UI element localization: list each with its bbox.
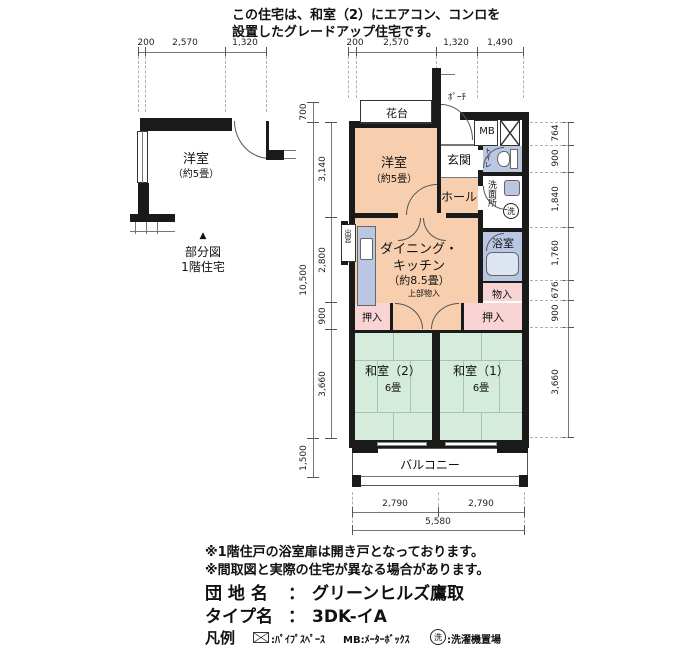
extension-line bbox=[530, 122, 568, 123]
oshiire-left-label: 押入 bbox=[362, 309, 382, 324]
extension-line bbox=[530, 327, 568, 328]
dim-label: 200 bbox=[346, 38, 363, 48]
dim-label: 1,760 bbox=[551, 240, 561, 266]
dim-tick bbox=[325, 122, 337, 123]
washitsu2-size: 6畳 bbox=[385, 379, 401, 394]
partial-marker: ▲ bbox=[200, 231, 207, 241]
dim-label: 764 bbox=[551, 124, 561, 141]
wall-washitsu-divider bbox=[432, 333, 440, 440]
type-name-separator: ： bbox=[288, 602, 305, 627]
dim-tick bbox=[352, 525, 353, 535]
legend-ps-text: :ﾊﾟｲﾌﾟｽﾍﾟｰｽ bbox=[271, 631, 325, 646]
dim-tick bbox=[352, 507, 353, 517]
toilet-tank bbox=[510, 149, 518, 169]
mb-label: MB bbox=[479, 126, 495, 137]
extension-line bbox=[530, 280, 568, 281]
balcony-block bbox=[519, 475, 528, 487]
legend-label: 凡例 bbox=[205, 627, 235, 648]
porch-label: ﾎﾟｰﾁ bbox=[448, 90, 466, 103]
dim-label: 900 bbox=[318, 307, 328, 324]
genkan-label: 玄関 bbox=[447, 151, 471, 168]
oshiire-right-label: 押入 bbox=[482, 309, 504, 325]
partial-left-wall bbox=[138, 183, 149, 216]
bay-window-cap bbox=[341, 221, 348, 225]
wall-top-b bbox=[460, 112, 529, 120]
balcony-label: バルコニー bbox=[400, 456, 460, 473]
dim-label: 900 bbox=[551, 149, 561, 166]
genkan-hall-line bbox=[441, 177, 478, 178]
pipe-space-legend-icon bbox=[253, 632, 269, 643]
laundry-legend-icon: 洗 bbox=[430, 629, 446, 645]
type-name-label: タイプ名 bbox=[205, 602, 273, 627]
wall-left bbox=[349, 121, 355, 448]
wall-stub-above-porch bbox=[432, 68, 441, 122]
estate-name-label: 団 地 名 bbox=[205, 579, 268, 604]
extension-line bbox=[530, 145, 568, 146]
door-gap bbox=[478, 186, 483, 210]
dim-label: 2,800 bbox=[318, 247, 328, 273]
kitchen-sink bbox=[360, 238, 373, 260]
mononyu-label: 物入 bbox=[492, 286, 512, 301]
balcony-block bbox=[352, 475, 361, 487]
dim-label: 3,660 bbox=[318, 371, 328, 397]
wall-oshiire-left-side bbox=[390, 303, 393, 330]
extension-line bbox=[530, 227, 568, 228]
dim-line-top-left bbox=[138, 52, 266, 53]
break-line bbox=[157, 222, 158, 234]
break-line bbox=[135, 222, 136, 234]
tatami-line bbox=[481, 412, 482, 440]
dim-tick bbox=[307, 477, 319, 478]
entrance-door-arc bbox=[441, 104, 473, 140]
dim-line-bottom-2 bbox=[352, 530, 525, 531]
dim-label: 1,500 bbox=[299, 445, 309, 471]
dim-label: 676 bbox=[551, 281, 561, 298]
bay-window-label: 出窓 bbox=[344, 229, 351, 243]
bay-window-cap bbox=[341, 261, 348, 265]
extension-line bbox=[530, 172, 568, 173]
wall-senmenjo-bath bbox=[483, 228, 522, 232]
extension-line bbox=[523, 56, 524, 98]
dim-label: 900 bbox=[551, 304, 561, 321]
dim-tick bbox=[438, 507, 439, 517]
break-line bbox=[146, 222, 147, 234]
dim-label: 1,320 bbox=[443, 38, 469, 48]
dim-label: 1,490 bbox=[487, 38, 513, 48]
dim-label: 1,320 bbox=[232, 38, 258, 48]
legend-mb-text: MB:ﾒｰﾀｰﾎﾞｯｸｽ bbox=[343, 631, 410, 646]
window-washitsu1 bbox=[445, 442, 497, 446]
break-line bbox=[130, 231, 175, 232]
dim-label: 2,570 bbox=[172, 38, 198, 48]
hall-label: ホール bbox=[441, 188, 477, 205]
dim-label: 2,790 bbox=[382, 499, 408, 509]
window-washitsu2 bbox=[377, 442, 427, 446]
extension-line bbox=[530, 300, 568, 301]
footer-note-2: ※間取図と実際の住宅が異なる場合があります。 bbox=[205, 559, 489, 578]
type-name-value: 3DK-イA bbox=[312, 602, 387, 627]
mb-box: MB bbox=[474, 120, 498, 146]
estate-name-separator: ： bbox=[288, 579, 305, 604]
dim-label: 3,140 bbox=[318, 156, 328, 182]
dim-label: 2,570 bbox=[383, 38, 409, 48]
extension-line bbox=[356, 56, 357, 98]
wall-oshiire-right-side bbox=[461, 303, 464, 330]
youshitsu-label: 洋室 bbox=[381, 152, 407, 171]
dim-label: 2,790 bbox=[468, 499, 494, 509]
washitsu1-size: 6畳 bbox=[473, 379, 489, 394]
dim-tick bbox=[307, 438, 319, 439]
pipe-space-icon bbox=[500, 120, 520, 146]
dim-label: 5,580 bbox=[425, 517, 451, 527]
partial-door-arc bbox=[234, 121, 270, 159]
dim-label: 10,500 bbox=[299, 264, 309, 296]
partial-wall-stub bbox=[266, 150, 284, 160]
partial-top-wall bbox=[140, 118, 232, 131]
extension-line bbox=[225, 56, 226, 112]
extension-line bbox=[477, 56, 478, 98]
washitsu1-label: 和室（1） bbox=[453, 362, 509, 379]
bathtub-icon bbox=[486, 252, 519, 276]
partial-bottom-wall bbox=[130, 214, 175, 222]
dim-label: 1,840 bbox=[551, 186, 561, 212]
dim-tick bbox=[325, 302, 337, 303]
jobu-mononyu-label: 上部物入 bbox=[408, 288, 440, 299]
dim-tick bbox=[325, 329, 337, 330]
estate-name-value: グリーンヒルズ鷹取 bbox=[312, 579, 464, 604]
cut-line bbox=[284, 150, 296, 151]
wall-bottom bbox=[349, 440, 529, 448]
wall-right bbox=[522, 114, 529, 448]
balcony-block bbox=[497, 448, 528, 453]
kadai-label: 花台 bbox=[386, 105, 408, 121]
extension-line bbox=[348, 56, 349, 98]
dim-tick bbox=[325, 217, 337, 218]
partial-window-midline bbox=[142, 131, 143, 183]
extension-line bbox=[530, 437, 568, 438]
dk-size: （約8.5畳） bbox=[388, 272, 450, 288]
cut-line bbox=[284, 158, 296, 159]
dim-label: 200 bbox=[137, 38, 154, 48]
balcony-block bbox=[352, 448, 378, 453]
youshitsu-size: （約5畳） bbox=[371, 170, 417, 185]
dim-tick bbox=[524, 525, 525, 535]
dim-line-left-inner bbox=[331, 122, 332, 438]
kadai-box: 花台 bbox=[360, 100, 432, 124]
tatami-line bbox=[481, 333, 482, 360]
dim-line-left-outer bbox=[313, 102, 314, 477]
dim-label: 700 bbox=[299, 103, 309, 120]
partial-room-size: （約5畳） bbox=[173, 165, 219, 180]
extension-line bbox=[266, 56, 267, 112]
extension-line bbox=[145, 56, 146, 112]
cut-line bbox=[441, 74, 455, 75]
tatami-line bbox=[393, 333, 394, 360]
tatami-line bbox=[440, 360, 522, 361]
partial-caption2: 1階住宅 bbox=[181, 258, 225, 275]
balcony-rail-line bbox=[354, 476, 526, 477]
legend-laundry-text: :洗濯機置場 bbox=[447, 631, 501, 646]
dim-label: 3,660 bbox=[551, 369, 561, 395]
footer-note-1: ※1階住戸の浴室扉は開き戸となっております。 bbox=[205, 541, 484, 560]
tatami-line bbox=[355, 360, 432, 361]
tatami-line bbox=[393, 412, 394, 440]
dim-tick bbox=[524, 507, 525, 517]
washitsu2-label: 和室（2） bbox=[365, 362, 421, 379]
wall-toilet-senmenjo bbox=[483, 172, 522, 176]
wall-bath-mononyu bbox=[483, 281, 522, 283]
genkan-step-line bbox=[441, 144, 478, 146]
dim-tick bbox=[325, 438, 337, 439]
extension-line bbox=[138, 56, 139, 112]
dim-tick bbox=[307, 122, 319, 123]
